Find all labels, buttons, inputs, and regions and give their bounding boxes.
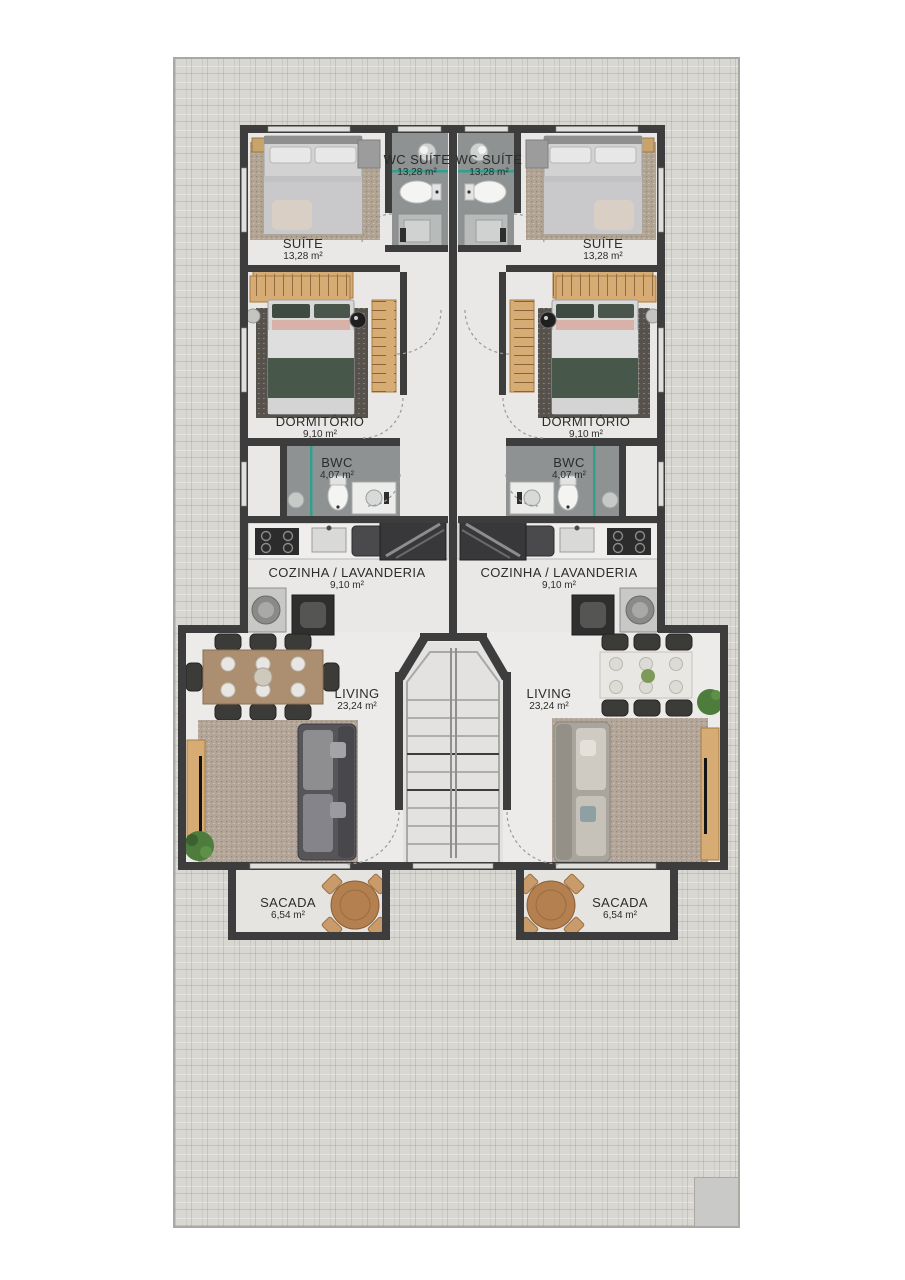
room-name: SACADA [592,895,648,910]
room-label-bwc-left: BWC 4,07 m² [320,455,354,482]
room-label-bwc-right: BWC 4,07 m² [552,455,586,482]
room-area: 9,10 m² [542,429,631,441]
room-area: 13,28 m² [583,251,623,263]
room-area: 9,10 m² [268,580,425,592]
room-label-living-left: LIVING 23,24 m² [334,686,379,713]
floor-plan-drawing [0,0,905,1280]
room-name: DORMITÓRIO [542,414,631,429]
plant-left [184,831,214,861]
room-name: WC SUÍTE [456,152,523,167]
room-area: 4,07 m² [552,470,586,482]
room-label-dormitorio-left: DORMITÓRIO 9,10 m² [276,414,365,441]
room-label-living-right: LIVING 23,24 m² [526,686,571,713]
living-left [184,634,358,862]
suite-bed-right [526,136,656,240]
tv-console-right [701,728,719,860]
room-label-dormitorio-right: DORMITÓRIO 9,10 m² [542,414,631,441]
room-label-cozinha-left: COZINHA / LAVANDERIA 9,10 m² [268,565,425,592]
room-area: 9,10 m² [480,580,637,592]
room-label-suite-left: SUÍTE 13,28 m² [283,236,323,263]
room-label-cozinha-right: COZINHA / LAVANDERIA 9,10 m² [480,565,637,592]
room-label-wc-suite-right: WC SUÍTE 13,28 m² [456,152,523,179]
room-area: 13,28 m² [384,167,451,179]
room-area: 6,54 m² [592,910,648,922]
sofa-left [298,724,356,860]
sofa-right [554,722,610,862]
sacada-table-left [321,873,388,937]
room-area: 9,10 m² [276,429,365,441]
room-name: WC SUÍTE [384,152,451,167]
room-name: BWC [552,455,586,470]
room-name: SACADA [260,895,316,910]
room-area: 23,24 m² [334,701,379,713]
room-name: COZINHA / LAVANDERIA [268,565,425,580]
room-name: BWC [320,455,354,470]
sacada-table-right [517,873,584,937]
room-name: SUÍTE [283,236,323,251]
floor-plan-canvas: SUÍTE 13,28 m² WC SUÍTE 13,28 m² DORMITÓ… [0,0,905,1280]
room-label-sacada-right: SACADA 6,54 m² [592,895,648,922]
room-name: LIVING [526,686,571,701]
room-name: LIVING [334,686,379,701]
room-label-sacada-left: SACADA 6,54 m² [260,895,316,922]
room-label-suite-right: SUÍTE 13,28 m² [583,236,623,263]
room-area: 4,07 m² [320,470,354,482]
room-area: 13,28 m² [456,167,523,179]
plant-right-top [697,689,723,715]
room-name: DORMITÓRIO [276,414,365,429]
room-name: SUÍTE [583,236,623,251]
room-area: 6,54 m² [260,910,316,922]
room-area: 23,24 m² [526,701,571,713]
room-name: COZINHA / LAVANDERIA [480,565,637,580]
suite-bed-left [250,136,380,240]
room-label-wc-suite-left: WC SUÍTE 13,28 m² [384,152,451,179]
room-area: 13,28 m² [283,251,323,263]
